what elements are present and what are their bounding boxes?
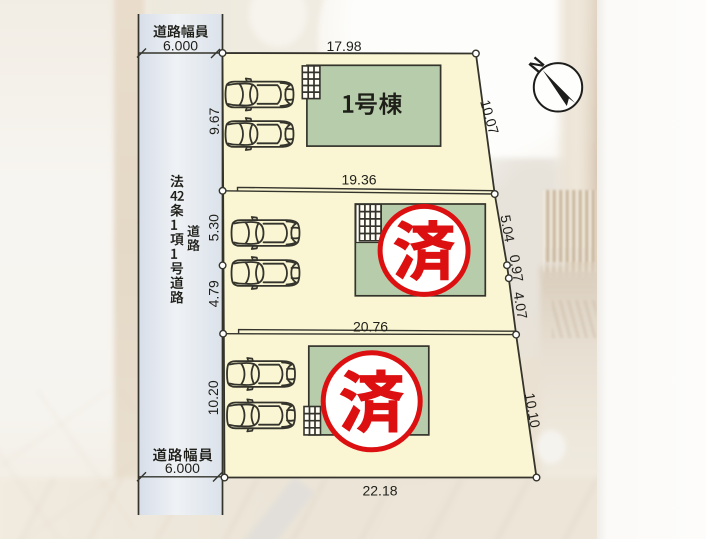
svg-text:19.36: 19.36	[341, 171, 376, 187]
svg-text:10.20: 10.20	[205, 380, 221, 415]
svg-text:20.76: 20.76	[353, 318, 388, 334]
svg-text:6.000: 6.000	[165, 460, 200, 476]
svg-text:6.000: 6.000	[163, 37, 198, 53]
svg-text:22.18: 22.18	[362, 482, 397, 498]
svg-text:17.98: 17.98	[326, 38, 361, 54]
svg-text:9.67: 9.67	[206, 107, 222, 134]
svg-text:4.79: 4.79	[206, 280, 222, 307]
svg-text:5.30: 5.30	[206, 214, 222, 241]
